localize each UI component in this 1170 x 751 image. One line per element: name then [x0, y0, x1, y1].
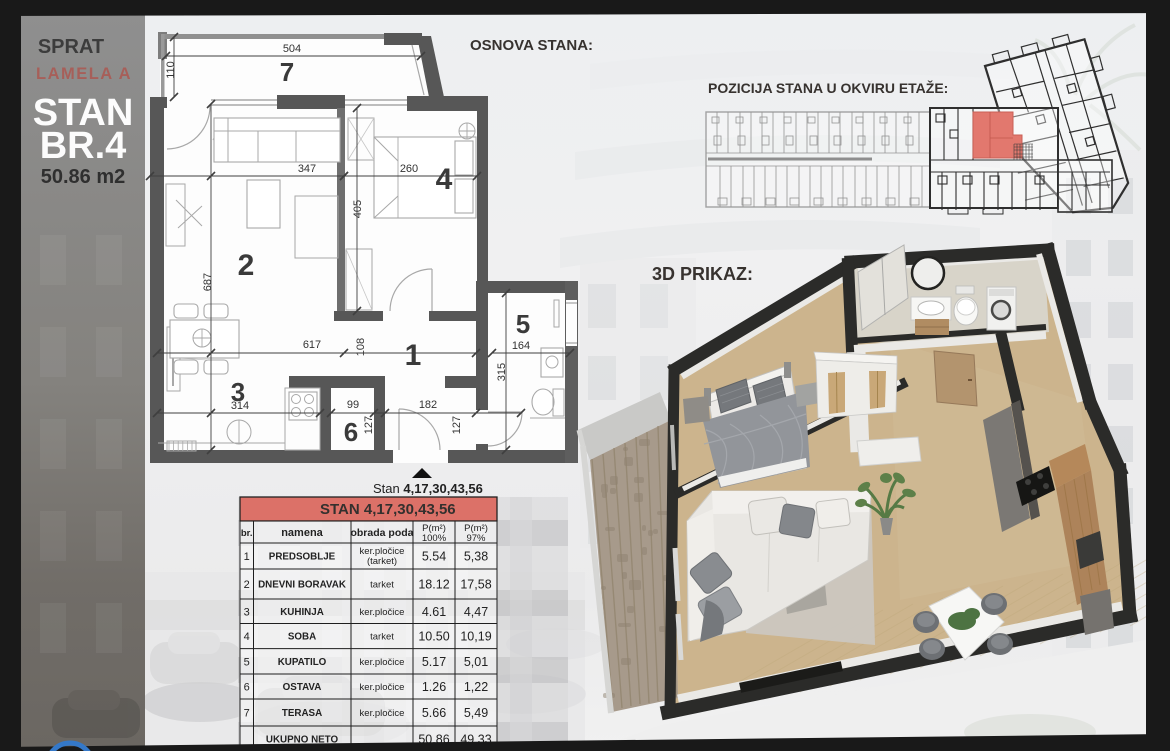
svg-text:ker.pločice: ker.pločice	[360, 657, 405, 668]
svg-text:3: 3	[244, 606, 250, 618]
svg-text:PREDSOBLJE: PREDSOBLJE	[269, 552, 336, 563]
svg-text:7: 7	[244, 708, 250, 720]
svg-text:SOBA: SOBA	[288, 632, 316, 643]
svg-text:SPRAT: SPRAT	[38, 36, 104, 58]
svg-text:504: 504	[283, 43, 301, 55]
svg-text:5.17: 5.17	[422, 655, 446, 669]
svg-text:br.: br.	[241, 528, 253, 539]
svg-text:TERASA: TERASA	[282, 708, 322, 719]
svg-text:108: 108	[355, 338, 367, 356]
svg-text:2: 2	[238, 249, 255, 282]
svg-text:DNEVNI BORAVAK: DNEVNI BORAVAK	[258, 580, 346, 591]
svg-text:7: 7	[280, 57, 294, 87]
svg-text:4.61: 4.61	[422, 605, 446, 619]
svg-text:4,47: 4,47	[464, 605, 488, 619]
svg-text:110: 110	[165, 61, 177, 79]
svg-text:99: 99	[347, 399, 359, 411]
svg-text:BR.4: BR.4	[40, 125, 127, 167]
svg-text:ker.pločice: ker.pločice	[360, 682, 405, 693]
svg-text:127: 127	[451, 416, 463, 434]
svg-text:namena: namena	[281, 527, 323, 539]
svg-text:5,01: 5,01	[464, 655, 488, 669]
svg-text:10,19: 10,19	[460, 630, 491, 644]
svg-text:2: 2	[244, 579, 250, 591]
svg-text:STAN 4,17,30,43,56: STAN 4,17,30,43,56	[320, 501, 456, 518]
svg-text:6: 6	[244, 682, 250, 694]
svg-text:POZICIJA STANA U OKVIRU ETAŽE:: POZICIJA STANA U OKVIRU ETAŽE:	[708, 79, 948, 96]
svg-text:17,58: 17,58	[460, 578, 491, 592]
svg-text:10.50: 10.50	[418, 630, 449, 644]
svg-text:OSTAVA: OSTAVA	[283, 682, 322, 693]
svg-text:tarket: tarket	[370, 580, 394, 591]
svg-text:1: 1	[244, 551, 250, 563]
svg-text:3: 3	[231, 377, 245, 407]
svg-text:97%: 97%	[466, 533, 486, 544]
svg-text:tarket: tarket	[370, 632, 394, 643]
svg-text:3D PRIKAZ:: 3D PRIKAZ:	[652, 264, 753, 284]
svg-text:405: 405	[352, 200, 364, 218]
svg-text:100%: 100%	[422, 533, 447, 544]
svg-text:LAMELA A: LAMELA A	[36, 65, 132, 83]
svg-text:obrada poda: obrada poda	[350, 527, 413, 539]
svg-text:260: 260	[400, 163, 418, 175]
svg-text:OSNOVA STANA:: OSNOVA STANA:	[470, 37, 593, 54]
svg-text:50.86 m2: 50.86 m2	[41, 166, 126, 188]
svg-text:127: 127	[363, 416, 375, 434]
svg-text:1,22: 1,22	[464, 680, 488, 694]
svg-text:5.54: 5.54	[422, 550, 446, 564]
svg-text:5: 5	[516, 309, 530, 339]
svg-text:182: 182	[419, 399, 437, 411]
svg-text:KUHINJA: KUHINJA	[280, 607, 324, 618]
svg-text:(tarket): (tarket)	[367, 556, 397, 567]
svg-text:4: 4	[244, 631, 250, 643]
svg-text:1.26: 1.26	[422, 680, 446, 694]
svg-text:347: 347	[298, 163, 316, 175]
svg-text:5,38: 5,38	[464, 550, 488, 564]
svg-text:5,49: 5,49	[464, 706, 488, 720]
svg-text:687: 687	[202, 273, 214, 291]
svg-text:KUPATILO: KUPATILO	[278, 657, 327, 668]
svg-text:617: 617	[303, 339, 321, 351]
svg-text:164: 164	[512, 340, 530, 352]
svg-text:6: 6	[344, 417, 358, 447]
svg-text:1: 1	[405, 339, 422, 372]
svg-text:Stan 4,17,30,43,56: Stan 4,17,30,43,56	[373, 481, 483, 496]
svg-text:18.12: 18.12	[418, 578, 449, 592]
svg-text:315: 315	[496, 363, 508, 381]
svg-text:ker.pločice: ker.pločice	[360, 708, 405, 719]
svg-text:5: 5	[244, 656, 250, 668]
svg-text:4: 4	[436, 163, 453, 196]
svg-text:5.66: 5.66	[422, 706, 446, 720]
svg-text:ker.pločice: ker.pločice	[360, 607, 405, 618]
